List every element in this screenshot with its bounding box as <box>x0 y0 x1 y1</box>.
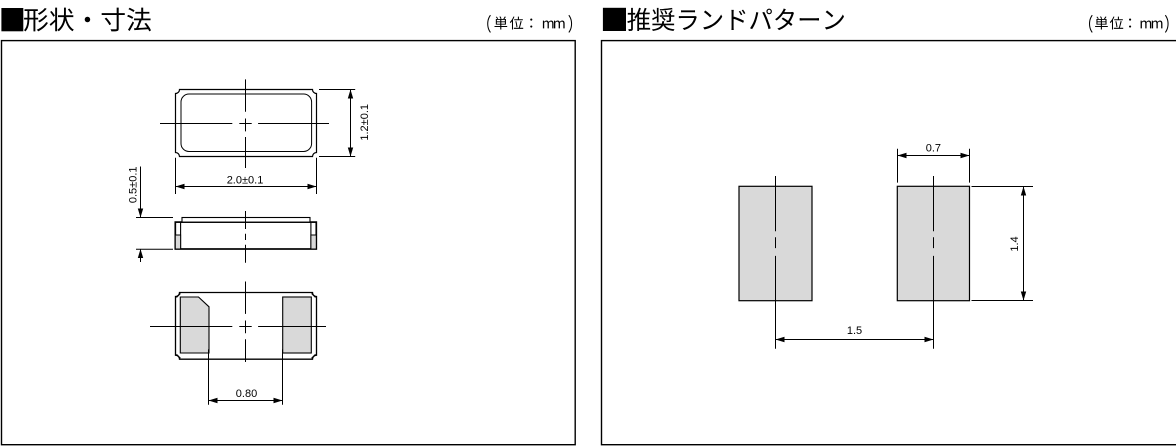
svg-text:1.5: 1.5 <box>847 325 862 337</box>
svg-text:2.0±0.1: 2.0±0.1 <box>227 175 264 187</box>
svg-text:0.7: 0.7 <box>926 143 941 155</box>
svg-text:0.80: 0.80 <box>236 388 257 400</box>
svg-text:1.4: 1.4 <box>1009 236 1021 251</box>
svg-text:0.5±0.1: 0.5±0.1 <box>127 166 139 203</box>
svg-text:1.2±0.1: 1.2±0.1 <box>359 104 371 141</box>
